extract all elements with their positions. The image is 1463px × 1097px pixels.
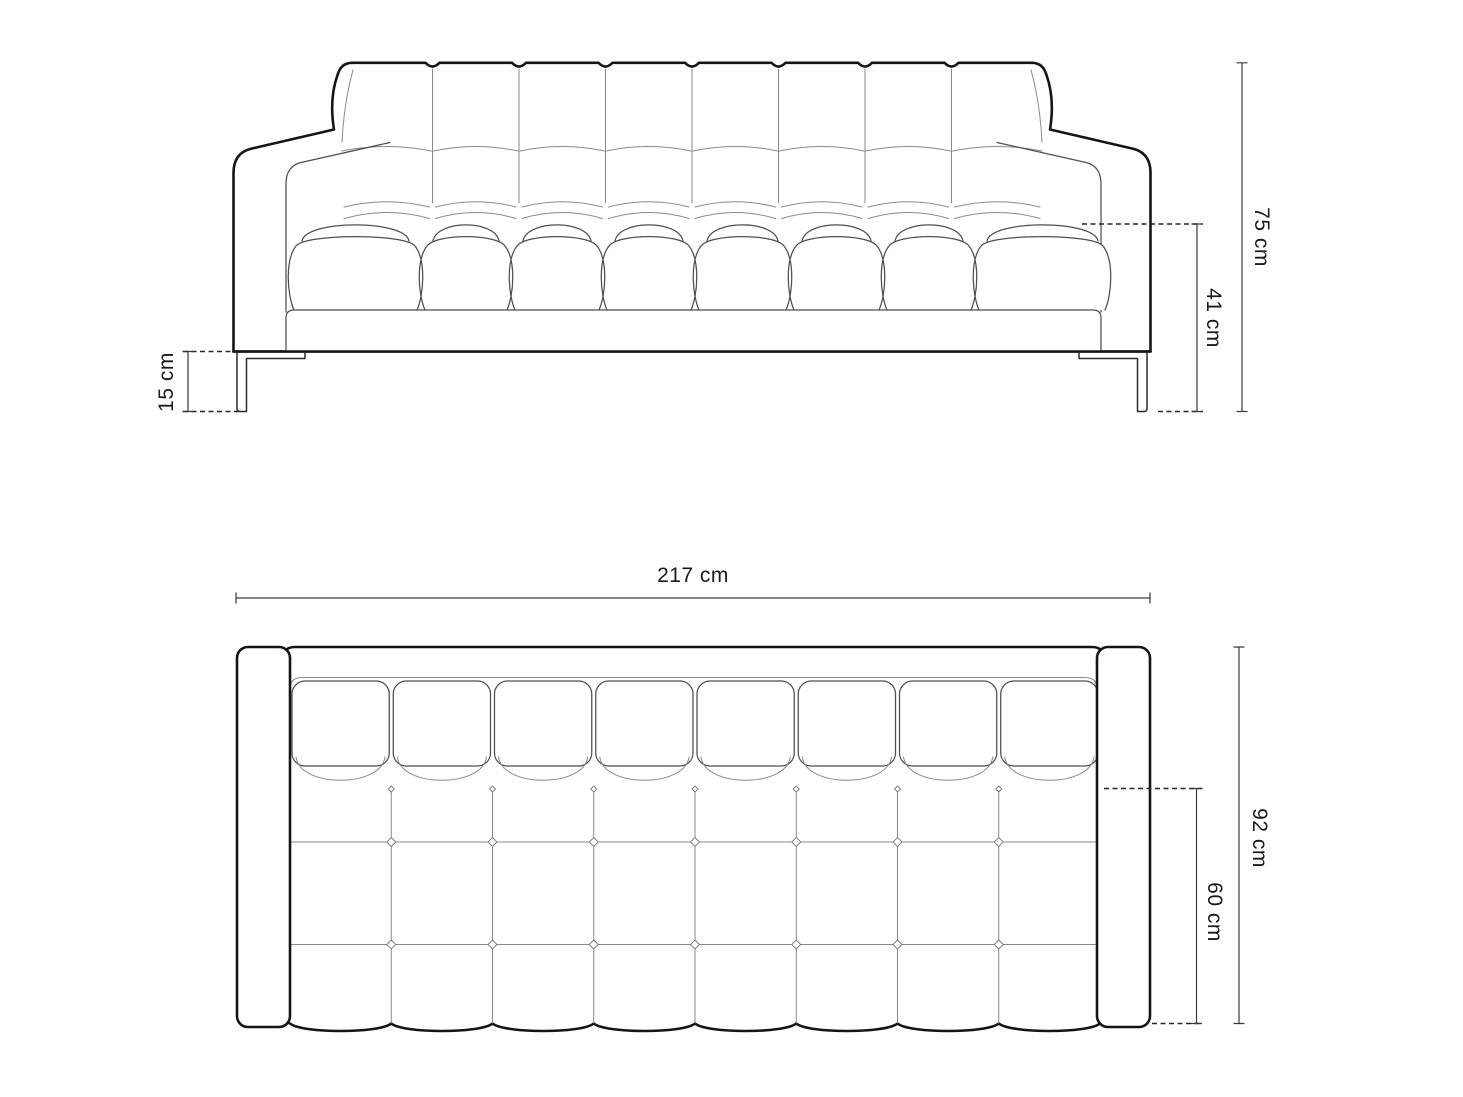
- dimension-seat-depth: [1191, 789, 1202, 1024]
- seat-base-bar: [286, 310, 1101, 352]
- dimension-overall-depth: [1234, 647, 1245, 1024]
- front-left-leg: [237, 352, 305, 412]
- dimension-overall-width: [236, 593, 1150, 604]
- dimension-leg-height: [183, 352, 194, 412]
- dimension-label-overall-width: 217 cm: [657, 564, 729, 588]
- dimension-label-seat-height: 41 cm: [1201, 288, 1225, 348]
- dimension-overall-height: [1237, 63, 1248, 412]
- seat-cushions-front: [288, 237, 1111, 310]
- sofa-line-drawing: [0, 0, 1463, 1097]
- top-view: [237, 647, 1150, 1031]
- dimension-label-leg-height: 15 cm: [155, 352, 179, 412]
- dimension-label-overall-depth: 92 cm: [1247, 808, 1271, 868]
- top-left-armrest: [237, 647, 290, 1027]
- dimension-label-overall-height: 75 cm: [1249, 207, 1273, 267]
- front-right-leg: [1079, 352, 1147, 412]
- sofa-technical-drawing-page: 75 cm 41 cm 15 cm 217 cm 92 cm 60 cm: [0, 0, 1463, 1097]
- dimension-label-seat-depth: 60 cm: [1202, 882, 1226, 942]
- front-view: [234, 63, 1151, 412]
- top-right-armrest: [1097, 647, 1150, 1027]
